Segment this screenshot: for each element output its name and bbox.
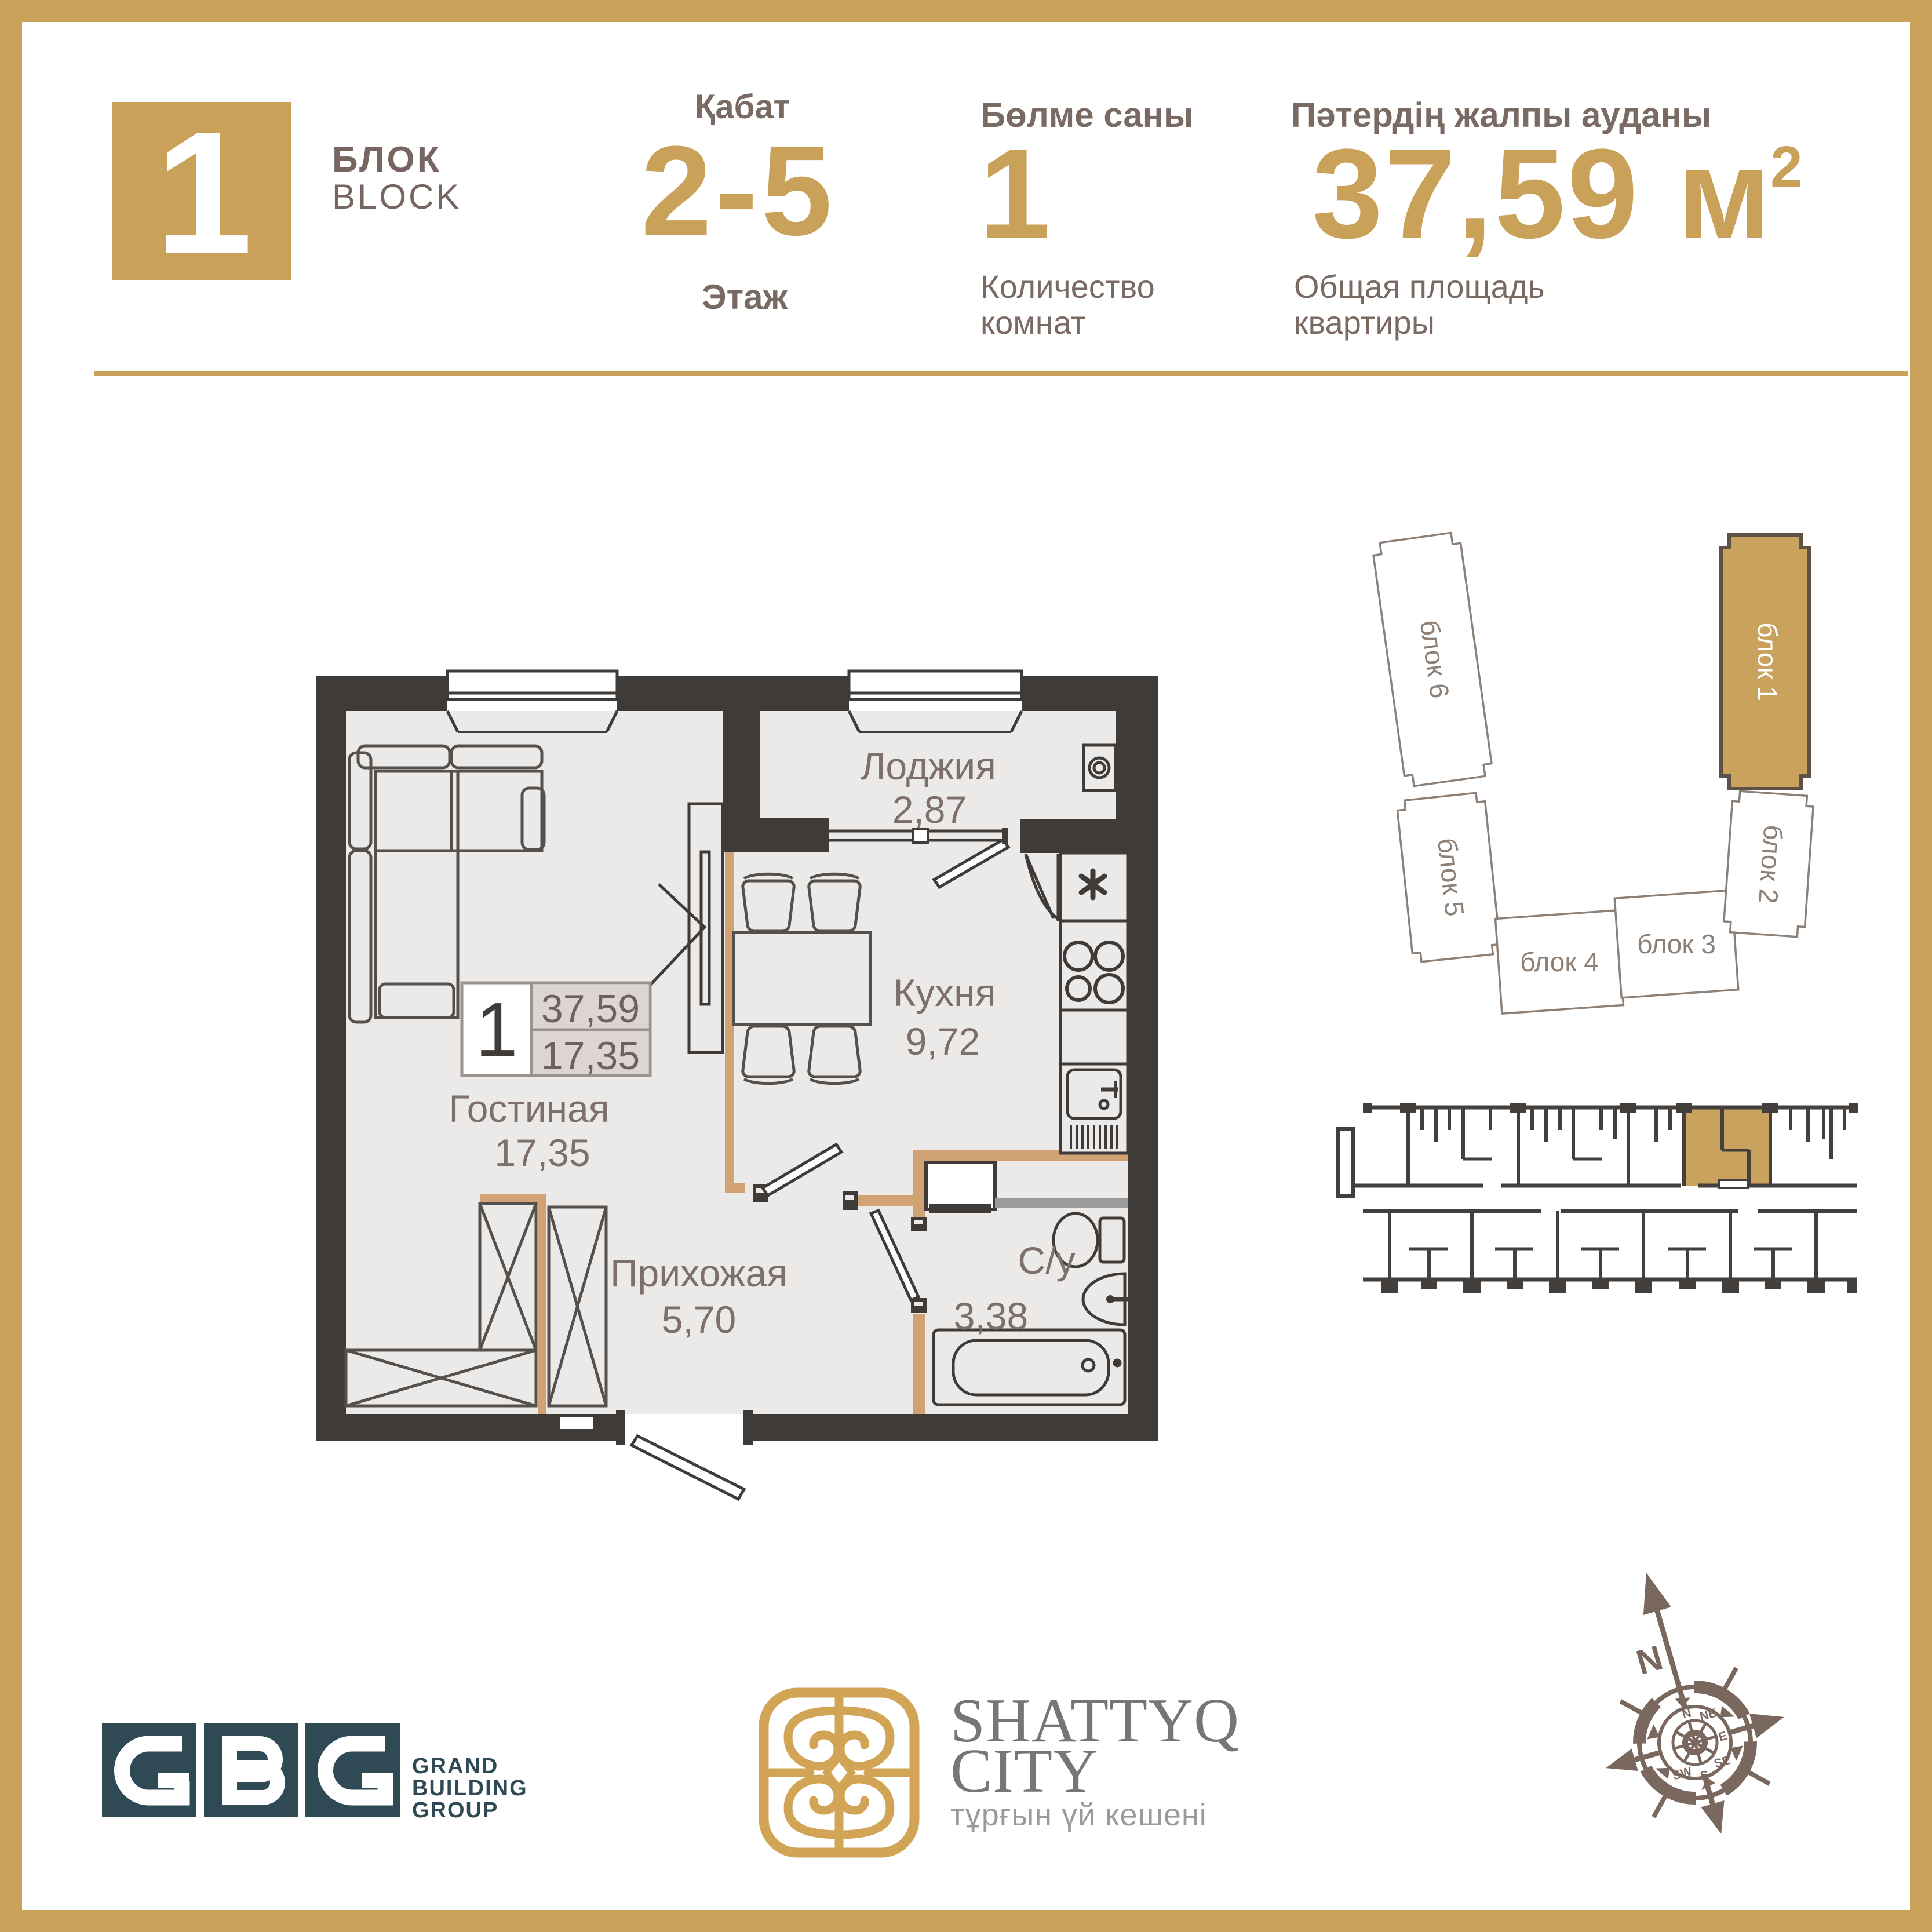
svg-text:квартиры: квартиры	[1294, 304, 1435, 341]
svg-text:2,87: 2,87	[892, 788, 967, 831]
svg-text:блок 4: блок 4	[1520, 947, 1599, 977]
svg-text:5,70: 5,70	[662, 1298, 736, 1341]
svg-text:комнат: комнат	[980, 304, 1085, 341]
svg-text:BLOCK: BLOCK	[332, 177, 461, 216]
svg-text:Кухня: Кухня	[894, 971, 996, 1014]
svg-text:CITY: CITY	[950, 1737, 1099, 1806]
svg-text:BUILDING: BUILDING	[412, 1776, 528, 1800]
svg-text:GROUP: GROUP	[412, 1798, 498, 1822]
svg-text:С/у: С/у	[1018, 1239, 1076, 1282]
svg-text:тұрғын үй кешені: тұрғын үй кешені	[950, 1798, 1207, 1832]
svg-text:37,59: 37,59	[541, 987, 640, 1031]
svg-text:3,38: 3,38	[954, 1295, 1028, 1337]
svg-text:блок 2: блок 2	[1753, 824, 1788, 905]
svg-text:2: 2	[1770, 134, 1803, 199]
svg-text:блок 1: блок 1	[1752, 622, 1782, 701]
svg-text:Общая площадь: Общая площадь	[1294, 268, 1545, 305]
svg-text:Количество: Количество	[980, 268, 1155, 305]
svg-text:1: 1	[475, 987, 517, 1072]
svg-text:1: 1	[979, 122, 1050, 265]
svg-text:Гостиная: Гостиная	[449, 1087, 609, 1130]
svg-text:Лоджия: Лоджия	[861, 745, 996, 788]
svg-text:БЛОК: БЛОК	[332, 140, 442, 180]
svg-text:2-5: 2-5	[641, 119, 836, 262]
svg-text:Этаж: Этаж	[702, 278, 788, 316]
svg-text:блок 3: блок 3	[1637, 929, 1716, 959]
svg-text:GRAND: GRAND	[412, 1754, 498, 1778]
svg-text:17,35: 17,35	[494, 1131, 590, 1174]
svg-text:Прихожая: Прихожая	[610, 1252, 788, 1295]
svg-text:17,35: 17,35	[541, 1034, 640, 1078]
svg-text:9,72: 9,72	[906, 1020, 980, 1063]
svg-text:37,59 м: 37,59 м	[1312, 122, 1773, 265]
svg-text:1: 1	[155, 95, 253, 290]
